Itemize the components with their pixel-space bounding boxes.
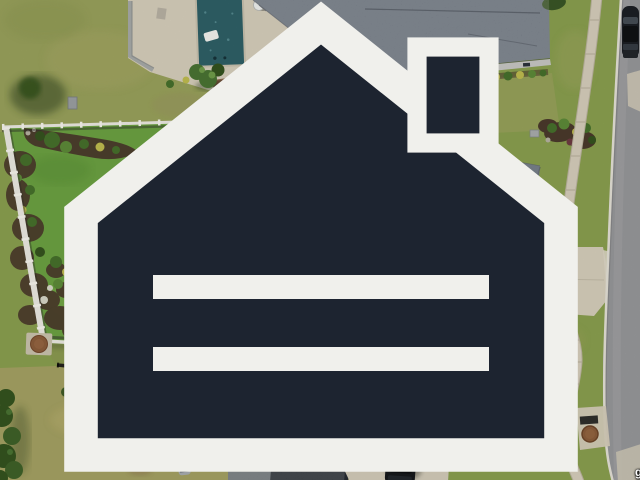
photo-grain — [0, 0, 640, 480]
aerial-scene — [0, 0, 640, 480]
aerial-photo: ggarMLS™ — [0, 0, 640, 480]
